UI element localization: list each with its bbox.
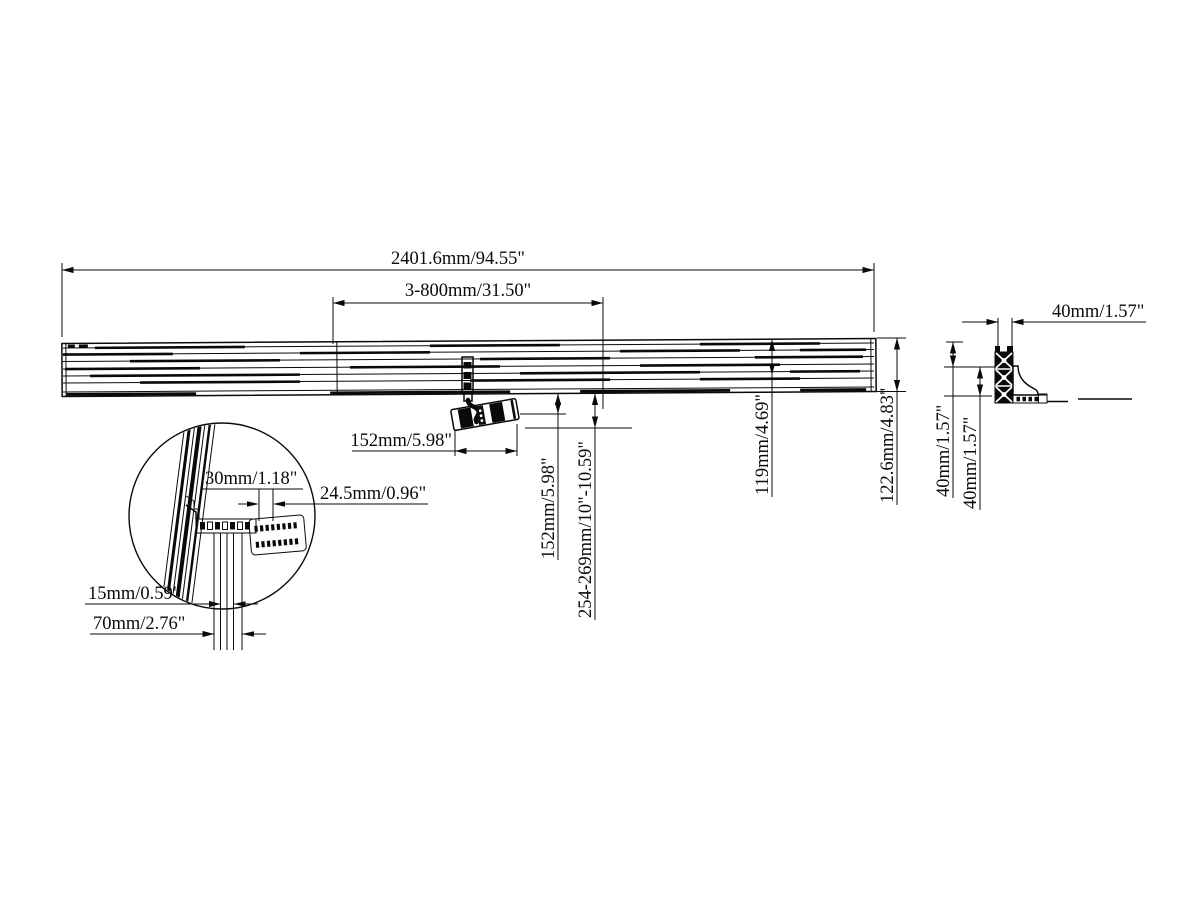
dim-strip-offset: 70mm/2.76" xyxy=(90,614,266,637)
dim-rail-height-inner: 119mm/4.69" xyxy=(753,340,773,498)
dim-strip-width-label: 15mm/0.59" xyxy=(88,584,180,604)
dim-drop-fixed-label: 152mm/5.98" xyxy=(539,457,559,559)
dim-plate-width-label: 152mm/5.98" xyxy=(350,431,452,451)
technical-drawing-page: { "drawing": { "title": "Rail mount tech… xyxy=(0,0,1200,900)
dim-drop-range-label: 254-269mm/10"-10.59" xyxy=(576,441,596,618)
striped-plate xyxy=(451,398,520,430)
dim-overall-length-label: 2401.6mm/94.55" xyxy=(391,249,525,269)
dim-plate-thickness-label: 24.5mm/0.96" xyxy=(320,484,426,504)
rail-side-view xyxy=(995,318,1132,403)
dim-drop-fixed: 152mm/5.98" xyxy=(520,394,566,561)
dim-profile-depth: 40mm/1.57" xyxy=(962,302,1146,322)
bracket-gusset xyxy=(1013,366,1038,395)
dim-profile-height-b-label: 40mm/1.57" xyxy=(961,417,981,509)
dim-profile-depth-label: 40mm/1.57" xyxy=(1052,302,1144,322)
dim-profile-height-a-label: 40mm/1.57" xyxy=(934,405,954,497)
dim-strip-offset-label: 70mm/2.76" xyxy=(93,614,185,634)
dim-hole-spacing-label: 30mm/1.18" xyxy=(205,469,297,489)
dim-plate-width: 152mm/5.98" xyxy=(350,424,517,456)
dim-rail-height-inner-label: 119mm/4.69" xyxy=(753,394,773,495)
drawing-canvas: 2401.6mm/94.55" 3-800mm/31.50" 152mm/5.9… xyxy=(0,0,1200,900)
dim-bracket-spacing-label: 3-800mm/31.50" xyxy=(405,281,531,301)
dim-rail-height-outer: 122.6mm/4.83" xyxy=(877,338,906,505)
dim-rail-height-outer-label: 122.6mm/4.83" xyxy=(878,388,898,503)
